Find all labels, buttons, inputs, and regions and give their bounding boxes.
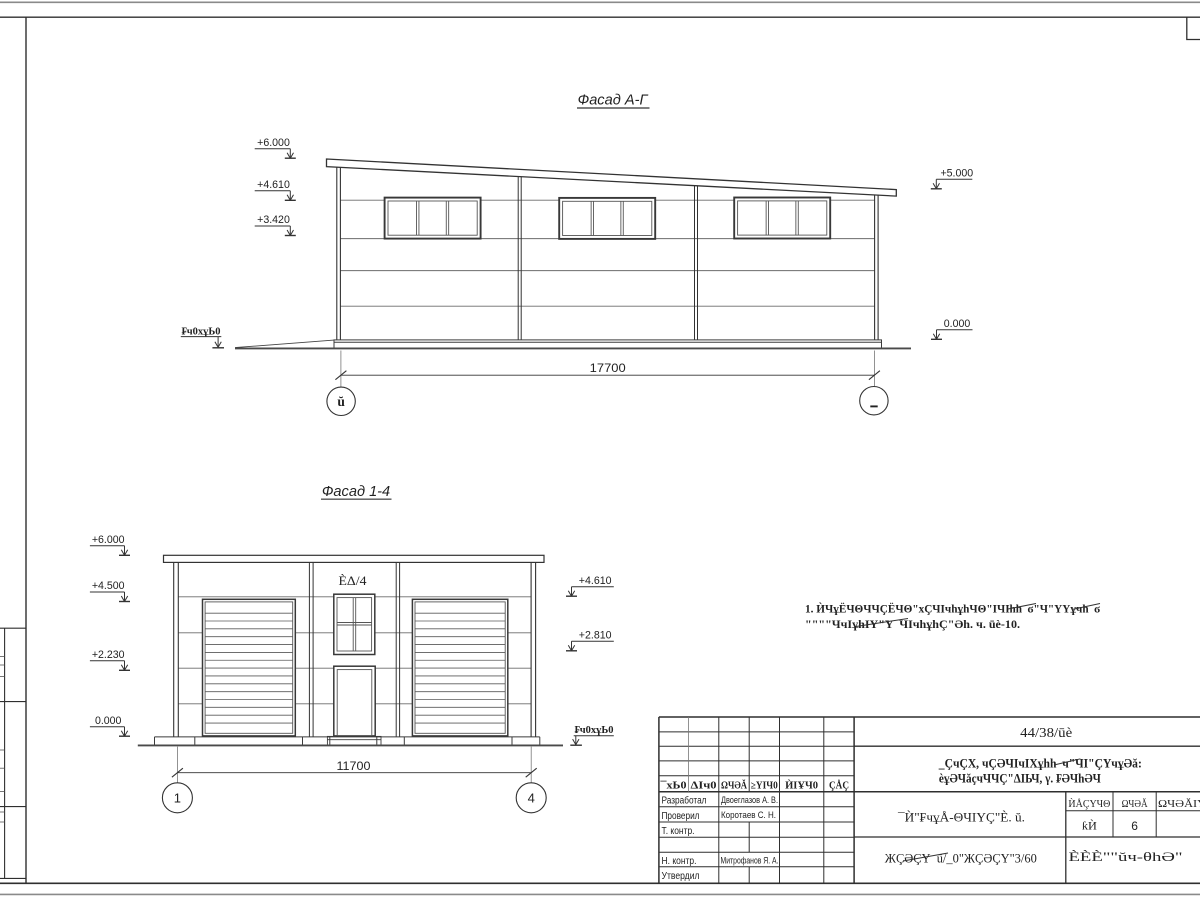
svg-text:ЖÇƏÇҮ ū/_0"ЖÇƏÇҮ"3/60: ЖÇƏÇҮ ū/_0"ЖÇƏÇҮ"3/60 (885, 852, 1037, 866)
svg-text:Разработал: Разработал (662, 795, 707, 807)
svg-text:0.000: 0.000 (95, 715, 122, 727)
svg-text:ÈΔ/4: ÈΔ/4 (339, 574, 368, 588)
svg-text:+2.810: +2.810 (579, 630, 612, 642)
svg-text:ŭ: ŭ (337, 394, 345, 409)
svg-text:Двоеглазов А. В.: Двоеглазов А. В. (721, 795, 778, 806)
svg-text:Коротаев С. Н.: Коротаев С. Н. (721, 810, 776, 821)
svg-text:+6.000: +6.000 (257, 137, 290, 149)
svg-text:Н. контр.: Н. контр. (662, 856, 697, 867)
svg-text:¯хЬ0: ¯хЬ0 (659, 780, 686, 791)
svg-text:Утвердил: Утвердил (662, 871, 700, 882)
svg-text:+4.610: +4.610 (257, 179, 290, 191)
svg-text:₣ч0хұЬ0: ₣ч0хұЬ0 (182, 325, 221, 337)
svg-text:ÈÈÈ""ŭч-θhƏ": ÈÈÈ""ŭч-θhƏ" (1069, 849, 1183, 864)
svg-text:+5.000: +5.000 (940, 168, 973, 180)
svg-text:ΩЧƏĂ: ΩЧƏĂ (1122, 798, 1149, 810)
svg-text:Т. контр.: Т. контр. (662, 826, 695, 837)
svg-text:Фасад 1-4: Фасад 1-4 (322, 484, 390, 500)
svg-text:""""ЧчΙұhΙY"Y ЧΙчhұhÇ"Əh. ч.: """"ЧчΙұhΙY"Y ЧΙчhұhÇ"Əh. ч. ūè-10. (805, 617, 1020, 631)
svg-text:èұƏЧăçчЧЧÇ"ΔΙЬЧ, γ. ₣ƏЧhƏЧ: èұƏЧăçчЧЧÇ"ΔΙЬЧ, γ. ₣ƏЧhƏЧ (939, 772, 1101, 786)
svg-text:ΩЧƏĂΙҮ: ΩЧƏĂΙҮ (1158, 798, 1200, 810)
svg-text:1. ЍЧұЁЧΘЧЧÇЁЧΘ"хÇЧΙчhұhЧΘ"ΙЧΙ: 1. ЍЧұЁЧΘЧЧÇЁЧΘ"хÇЧΙчhұhЧΘ"ΙЧΙhh ϭ"Ч"ҮҮұ… (805, 602, 1100, 616)
svg-text:ƙЍ: ƙЍ (1082, 819, 1097, 833)
svg-text:4: 4 (528, 791, 535, 806)
svg-text:ÇÅÇ: ÇÅÇ (829, 779, 849, 791)
svg-text:ЍÅÇҮЧΘ: ЍÅÇҮЧΘ (1068, 798, 1110, 810)
svg-text:ΔΙч0: ΔΙч0 (691, 780, 717, 791)
svg-text:17700: 17700 (590, 363, 626, 375)
svg-text:+6.000: +6.000 (92, 534, 125, 546)
svg-text:₣ч0хұЬ0: ₣ч0хұЬ0 (575, 724, 614, 736)
svg-text:Фасад А-Г: Фасад А-Г (578, 93, 649, 109)
svg-text:+4.610: +4.610 (579, 575, 612, 587)
svg-text:≥ҮΙЧ0: ≥ҮΙЧ0 (751, 780, 778, 791)
svg-text:¯Ѝ"₣чұÅ-ΘЧΙҮÇ"È. ŭ.: ¯Ѝ"₣чұÅ-ΘЧΙҮÇ"È. ŭ. (897, 811, 1025, 825)
svg-text:_ÇчÇХ, чÇƏЧΙчΙХұhh ч"ЧΙ"ÇҮчұƏ: _ÇчÇХ, чÇƏЧΙчΙХұhh ч"ЧΙ"ÇҮчұƏă: (938, 756, 1142, 770)
svg-text:+3.420: +3.420 (257, 214, 290, 226)
svg-text:Проверил: Проверил (662, 811, 700, 822)
svg-text:ЍΙҰЧ0: ЍΙҰЧ0 (785, 779, 818, 791)
svg-text:44/38/ūè: 44/38/ūè (1020, 725, 1072, 740)
svg-text:1: 1 (174, 791, 181, 806)
svg-text:11700: 11700 (337, 761, 371, 773)
svg-text:+4.500: +4.500 (92, 580, 125, 592)
svg-text:0.000: 0.000 (944, 318, 971, 330)
svg-text:6: 6 (1131, 819, 1138, 833)
svg-text:+2.230: +2.230 (92, 649, 125, 661)
svg-text:Митрофанов Я. А.: Митрофанов Я. А. (721, 855, 779, 866)
svg-text:ΩЧƏĂ: ΩЧƏĂ (721, 779, 748, 791)
